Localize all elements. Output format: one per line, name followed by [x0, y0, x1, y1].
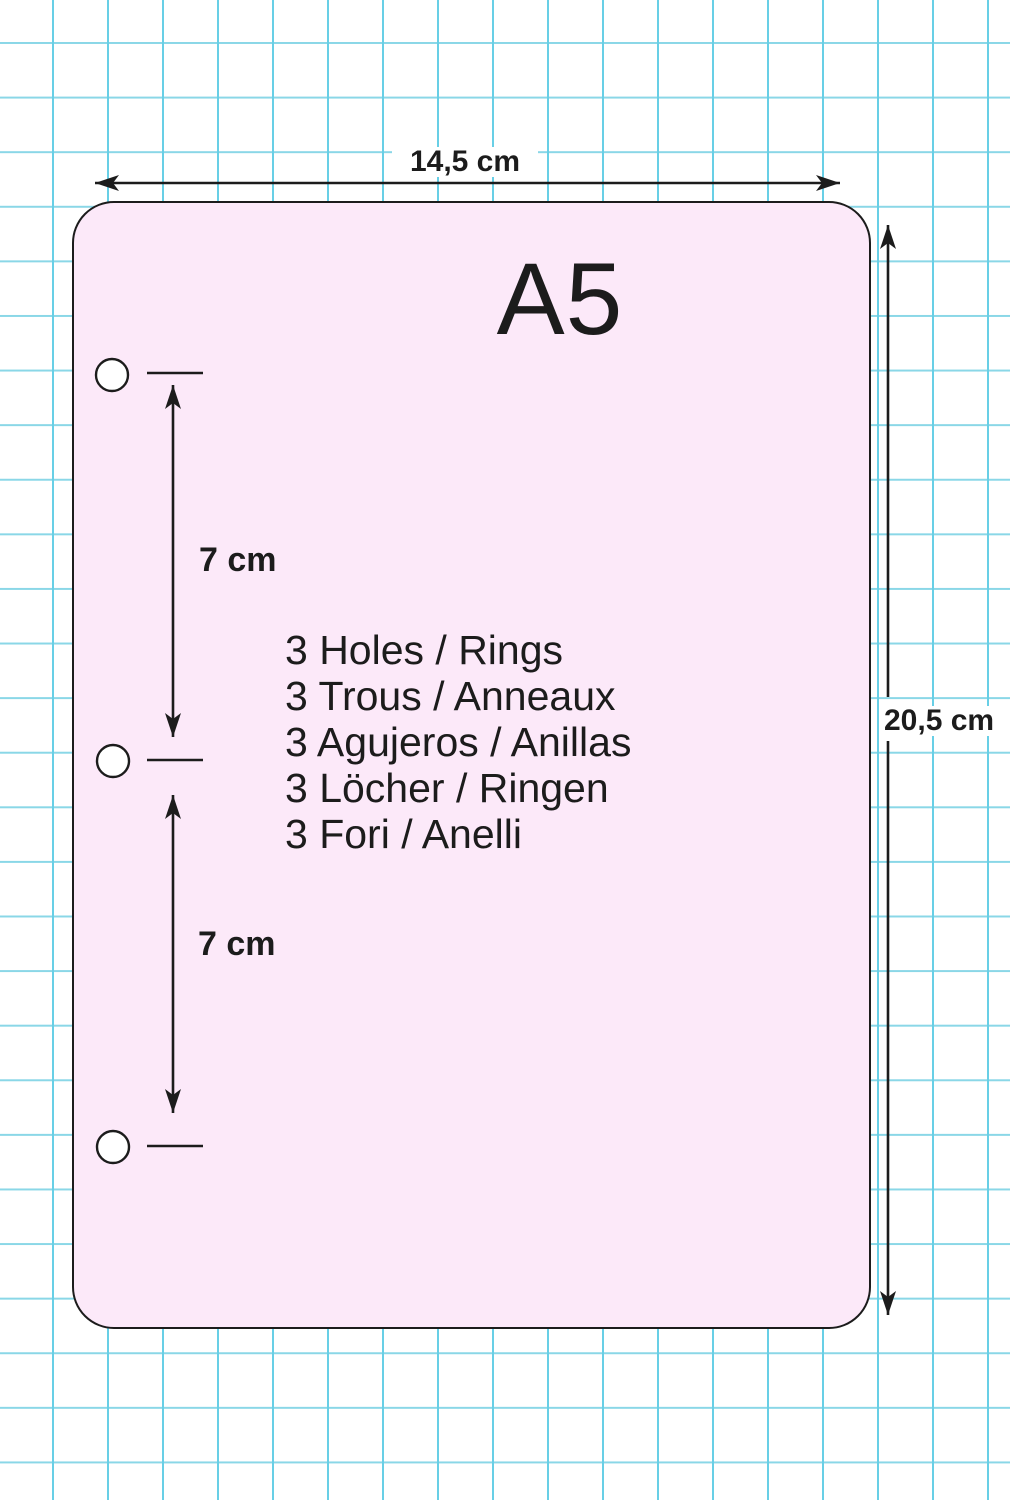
feature-line-it: 3 Fori / Anelli — [285, 811, 631, 857]
feature-list: 3 Holes / Rings 3 Trous / Anneaux 3 Aguj… — [285, 627, 631, 857]
feature-line-es: 3 Agujeros / Anillas — [285, 719, 631, 765]
diagram-canvas: A5 14,5 cm 20,5 cm 7 cm 7 cm 3 Holes / R… — [0, 0, 1010, 1500]
hole-spacing-label-1: 7 cm — [199, 543, 277, 578]
feature-line-fr: 3 Trous / Anneaux — [285, 673, 631, 719]
feature-line-de: 3 Löcher / Ringen — [285, 765, 631, 811]
feature-line-en: 3 Holes / Rings — [285, 627, 631, 673]
height-dimension-label: 20,5 cm — [879, 706, 999, 736]
sheet-format-label: A5 — [440, 248, 680, 350]
hole-spacing-label-2: 7 cm — [198, 927, 276, 962]
width-dimension-label: 14,5 cm — [392, 147, 538, 177]
